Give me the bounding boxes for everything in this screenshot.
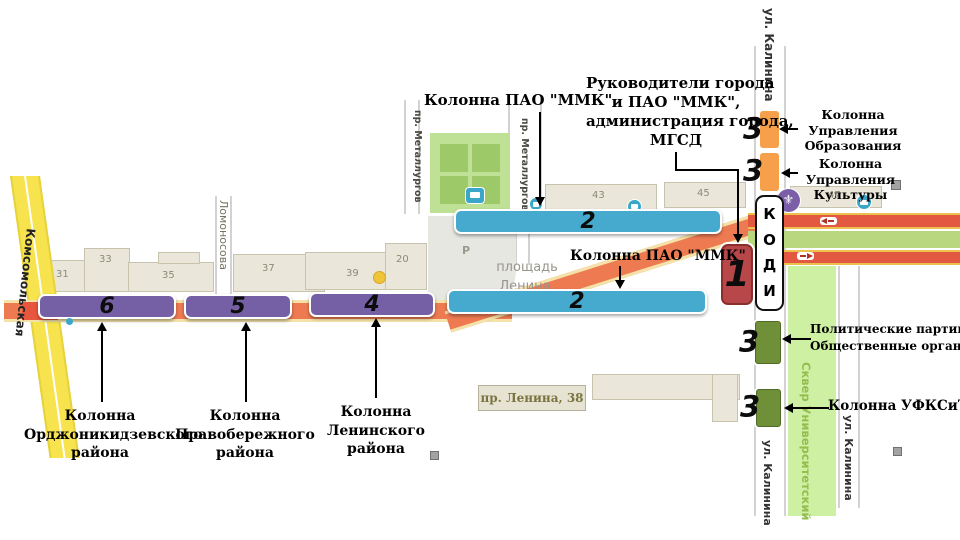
column-number: 2 <box>580 209 595 234</box>
kodi-letter: К <box>763 207 775 222</box>
parade-route-map: Комсомольская Ломоносова пр. Металлургов… <box>0 0 960 540</box>
column-number: 2 <box>569 289 584 314</box>
column-number: 3 <box>740 390 760 424</box>
callout-line: района <box>316 440 436 459</box>
callout-district-6: Колонна Орджоникидзевского района <box>24 407 176 463</box>
arrowhead <box>371 318 381 327</box>
column-box-political: 3 <box>755 321 781 364</box>
callout-line: района <box>175 444 315 463</box>
building-number: 31 <box>56 269 69 280</box>
callout-line: Колонна <box>175 407 315 426</box>
poi-icon-yellow <box>373 271 386 284</box>
building-number: 33 <box>99 254 112 265</box>
park-building <box>440 144 468 172</box>
callout-line: Политические партии, <box>810 321 960 338</box>
callout-line: Орджоникидзевского <box>24 426 176 445</box>
street-label-metallurgov-west: пр. Металлургов <box>412 110 423 200</box>
callout-line: Руководители города <box>586 74 766 93</box>
callout-line: Колонна <box>793 107 913 123</box>
arrowhead <box>97 322 107 331</box>
arrowhead <box>733 234 743 243</box>
building-bump <box>158 252 200 264</box>
column-number: 5 <box>230 294 245 319</box>
arrowhead <box>779 124 788 134</box>
callout-line: Колонна <box>24 407 176 426</box>
callout-line: Управления <box>793 172 908 188</box>
building-number: 45 <box>697 188 710 199</box>
building-number: 43 <box>592 190 605 201</box>
arrow-line <box>375 326 377 398</box>
callout-education: Колонна Управления Образования <box>793 107 913 154</box>
park-building <box>472 144 500 172</box>
street-label-lomonosova: Ломоносова <box>217 200 230 302</box>
callout-line: Колонна <box>316 403 436 422</box>
building-number: 20 <box>396 254 409 265</box>
column-box-ufksit: 3 <box>756 389 781 427</box>
callout-district-5: Колонна Правобережного района <box>175 407 315 463</box>
callout-mmk-mid: Колонна ПАО "ММК" <box>570 248 715 264</box>
callout-line: Образования <box>793 138 913 154</box>
street-label-kalinina-sw: ул. Калинина <box>761 440 774 525</box>
callout-line: МГСД <box>586 131 766 150</box>
callout-line: Ленинского <box>316 422 436 441</box>
column-number: 3 <box>743 154 763 188</box>
bus-stop-icon <box>466 188 484 203</box>
callout-mmk-top: Колонна ПАО "ММК" <box>424 91 572 109</box>
building-38-wing <box>712 374 738 422</box>
kodi-box: К О Д И <box>755 195 784 311</box>
column-box-culture: 3 <box>760 153 779 191</box>
kodi-letter: И <box>763 284 776 299</box>
building-number: 37 <box>262 263 275 274</box>
street-label-kalinina-se: ул. Калинина <box>842 415 855 500</box>
column-bar-5: 5 <box>184 294 292 319</box>
column-bar-6: 6 <box>38 294 176 319</box>
callout-line: района <box>24 444 176 463</box>
building-20 <box>385 243 427 290</box>
arrowhead <box>781 168 790 178</box>
column-number: 4 <box>364 292 379 317</box>
parking-icon: Р <box>462 244 470 257</box>
arrowhead <box>615 280 625 289</box>
poi-icon-blue-dot <box>66 318 73 325</box>
park-building <box>440 176 468 204</box>
connector-line <box>675 152 677 169</box>
gray-marker <box>893 447 902 456</box>
callout-ufksit: Колонна УФКСиТ <box>828 398 960 414</box>
callout-line: Управления <box>793 123 913 139</box>
column-bar-2-top: 2 <box>454 209 722 234</box>
callout-culture: Колонна Управления Культуры <box>793 156 908 203</box>
column-bar-2-bottom: 2 <box>447 289 707 314</box>
callout-line: и ПАО "ММК", <box>586 93 766 112</box>
callout-district-4: Колонна Ленинского района <box>316 403 436 459</box>
column-number: 3 <box>739 324 759 358</box>
column-bar-4: 4 <box>309 292 435 317</box>
kodi-letter: О <box>763 233 776 248</box>
arrowhead <box>782 334 791 344</box>
road-arrow-east <box>797 252 814 260</box>
connector-line <box>675 169 739 171</box>
arrow-line <box>245 330 247 402</box>
arrow-line <box>791 407 829 409</box>
building-number: 35 <box>162 270 175 281</box>
arrowhead <box>784 403 793 413</box>
skver-label: Сквер Университетский <box>799 362 813 512</box>
connector-line <box>737 169 739 235</box>
column-number: 6 <box>99 294 114 319</box>
square-label-line1: площадь <box>496 260 558 275</box>
arrowhead <box>241 322 251 331</box>
arrow-line <box>101 330 103 402</box>
arrow-line <box>539 112 541 198</box>
callout-line: администрация города, <box>586 112 766 131</box>
callout-line: Общественные организации <box>810 338 960 355</box>
kodi-letter: Д <box>763 258 776 273</box>
arrowhead <box>535 197 545 206</box>
callout-line: Колонна <box>793 156 908 172</box>
arrow-line <box>789 338 811 340</box>
building-number: 39 <box>346 268 359 279</box>
lenina-38-label-box: пр. Ленина, 38 <box>478 385 586 411</box>
street-label-metallurgov-east: пр. Металлургов <box>519 118 530 208</box>
road-arrow-west <box>820 217 837 225</box>
callout-line: Культуры <box>793 187 908 203</box>
lenina-38-label: пр. Ленина, 38 <box>480 391 583 405</box>
callout-line: Правобережного <box>175 426 315 445</box>
callout-political: Политические партии, Общественные органи… <box>810 321 960 355</box>
callout-leaders: Руководители города и ПАО "ММК", админис… <box>586 74 766 150</box>
